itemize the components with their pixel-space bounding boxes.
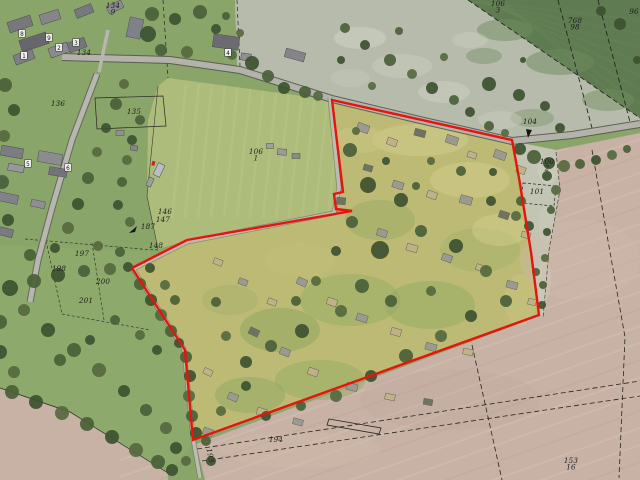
tree (8, 104, 20, 116)
tree (456, 166, 466, 176)
tree (41, 323, 55, 337)
tree (330, 390, 342, 402)
tree (50, 243, 60, 253)
tree (245, 56, 259, 70)
house-number-2: 2 (56, 44, 62, 52)
svg-text:2: 2 (57, 46, 61, 52)
tree (152, 345, 162, 355)
tree (346, 216, 358, 228)
tree (62, 222, 74, 234)
tree (127, 135, 137, 145)
tree (160, 422, 172, 434)
tree (299, 86, 311, 98)
tree (105, 430, 119, 444)
tree (82, 172, 94, 184)
parcel-label-96: 96 (629, 7, 639, 16)
parcel-label-136: 136 (51, 99, 66, 108)
tree (262, 70, 274, 82)
tree (415, 225, 427, 237)
tree (511, 211, 521, 221)
tree (155, 44, 167, 56)
tree (596, 6, 606, 16)
svg-text:8: 8 (20, 32, 24, 38)
tree (93, 241, 103, 251)
tree (222, 12, 230, 20)
terrain-patch (265, 242, 335, 278)
house-number-9: 9 (46, 34, 52, 42)
tree (295, 324, 309, 338)
tree (412, 182, 420, 190)
terrain-patch (330, 69, 370, 87)
tree (542, 171, 552, 181)
tree (54, 354, 66, 366)
parcel-label-147: 147 (156, 215, 171, 224)
tree (539, 281, 547, 289)
terrain-patch (520, 220, 640, 300)
svg-text:5: 5 (26, 162, 30, 168)
house-number-8: 8 (19, 30, 25, 38)
terrain-patch (466, 48, 502, 64)
tree (278, 82, 290, 94)
tree (8, 366, 20, 378)
tree (92, 363, 106, 377)
tree (110, 315, 120, 325)
tree (384, 54, 396, 66)
tree (558, 160, 570, 172)
tree (55, 406, 69, 420)
tree (291, 296, 301, 306)
tree (117, 177, 127, 187)
tree (78, 265, 90, 277)
tree (169, 13, 181, 25)
tree (211, 24, 221, 34)
tree (543, 228, 551, 236)
tree (385, 295, 397, 307)
tree (181, 46, 193, 58)
terrain-patch (452, 32, 488, 48)
parcel-label-200: 200 (95, 277, 111, 286)
tree (514, 143, 526, 155)
svg-text:4: 4 (226, 51, 230, 57)
tree (2, 280, 18, 296)
tree (368, 82, 376, 90)
building (277, 149, 286, 156)
tree (313, 91, 323, 101)
tree (113, 200, 123, 210)
house-number-5: 5 (25, 160, 31, 168)
terrain-patch (582, 89, 634, 111)
tree (181, 456, 191, 466)
house-number-4: 4 (225, 49, 231, 57)
tree (129, 443, 143, 457)
tree (395, 27, 403, 35)
tree (489, 168, 497, 176)
tree (555, 123, 565, 133)
tree (311, 276, 321, 286)
tree (500, 295, 512, 307)
tree (394, 193, 408, 207)
garden-shed (423, 398, 433, 405)
parcel-label-135: 135 (127, 107, 142, 116)
tree (360, 177, 376, 193)
tree (27, 274, 41, 288)
tree (449, 239, 463, 253)
parcel-label-198: 198 (52, 264, 67, 273)
tree (265, 340, 277, 352)
tree (135, 330, 145, 340)
parcel-label-134: 134 (77, 48, 92, 57)
tree (360, 40, 370, 50)
tree (80, 417, 94, 431)
tree (337, 56, 345, 64)
tree (440, 53, 448, 61)
tree (125, 217, 135, 227)
tree (140, 404, 152, 416)
tree (435, 330, 447, 342)
tree (85, 335, 95, 345)
tree (513, 89, 525, 101)
tree (465, 107, 475, 117)
tree (2, 214, 14, 226)
building (116, 131, 124, 136)
tree (501, 129, 509, 137)
tree (101, 123, 111, 133)
map-stage: 1349134136135106110637689896104100210114… (0, 0, 640, 480)
tree (104, 263, 116, 275)
tree (426, 82, 438, 94)
tree (607, 150, 617, 160)
tree (355, 279, 369, 293)
tree (166, 464, 178, 476)
tree (170, 295, 180, 305)
tree (160, 280, 170, 290)
tree (623, 145, 631, 153)
tree (427, 157, 435, 165)
tree (575, 159, 585, 169)
tree (547, 206, 555, 214)
svg-text:9: 9 (47, 36, 51, 42)
terrain-patch (526, 49, 594, 75)
tree (614, 18, 626, 30)
tree (72, 198, 84, 210)
parcel-label-201: 201 (78, 296, 93, 305)
building (130, 145, 138, 151)
tree (352, 127, 360, 135)
tree (371, 241, 389, 259)
svg-text:3: 3 (74, 41, 78, 47)
garden-shed (336, 197, 346, 205)
tree (193, 5, 207, 19)
terrain-patch (430, 162, 510, 198)
tree (211, 297, 221, 307)
tree (67, 343, 81, 357)
tree (145, 263, 155, 273)
tree (407, 69, 417, 79)
parcel-label-148: 148 (149, 241, 164, 250)
building (267, 144, 274, 149)
tree (115, 247, 125, 257)
house-number-1: 1 (21, 52, 27, 60)
aerial-map: 1349134136135106110637689896104100210114… (0, 0, 640, 480)
tree (140, 26, 156, 42)
terrain-patch (372, 54, 432, 78)
tree (551, 185, 561, 195)
tree (541, 254, 549, 262)
tree (241, 381, 251, 391)
tree (449, 95, 459, 105)
tree (170, 442, 182, 454)
tree (486, 196, 496, 206)
house-number-6: 6 (65, 164, 71, 172)
tree (24, 249, 36, 261)
tree (145, 7, 159, 21)
tree (331, 246, 341, 256)
tree (122, 155, 132, 165)
tree (216, 406, 226, 416)
tree (118, 385, 130, 397)
house-number-3: 3 (73, 39, 79, 47)
tree (151, 455, 165, 469)
tree (591, 155, 601, 165)
building (292, 154, 300, 159)
terrain-patch (220, 432, 380, 468)
parcel-label-101: 101 (530, 187, 544, 196)
svg-text:6: 6 (66, 166, 70, 172)
tree (221, 331, 231, 341)
tree (18, 304, 30, 316)
tree (426, 286, 436, 296)
tree (340, 23, 350, 33)
tree (520, 57, 526, 63)
terrain-patch (418, 81, 470, 103)
tree (29, 395, 43, 409)
tree (5, 385, 19, 399)
tree (110, 98, 122, 110)
tree (382, 157, 390, 165)
tree (465, 310, 477, 322)
tree (135, 115, 145, 125)
parcel-label-194: 194 (269, 435, 284, 444)
parcel-label-104: 104 (523, 117, 538, 126)
tree (482, 77, 496, 91)
parcel-label-197: 197 (75, 249, 90, 258)
tree (236, 29, 244, 37)
parcel-label-187: 187 (141, 222, 156, 231)
terrain-patch (360, 370, 540, 430)
tree (119, 79, 129, 89)
tree (335, 305, 347, 317)
tree (343, 143, 357, 157)
tree (480, 265, 492, 277)
tree (240, 356, 252, 368)
terrain-patch (215, 377, 285, 413)
terrain-patch (202, 285, 258, 315)
tree (540, 101, 550, 111)
tree (92, 147, 102, 157)
svg-text:1: 1 (22, 54, 26, 60)
tree (484, 121, 494, 131)
